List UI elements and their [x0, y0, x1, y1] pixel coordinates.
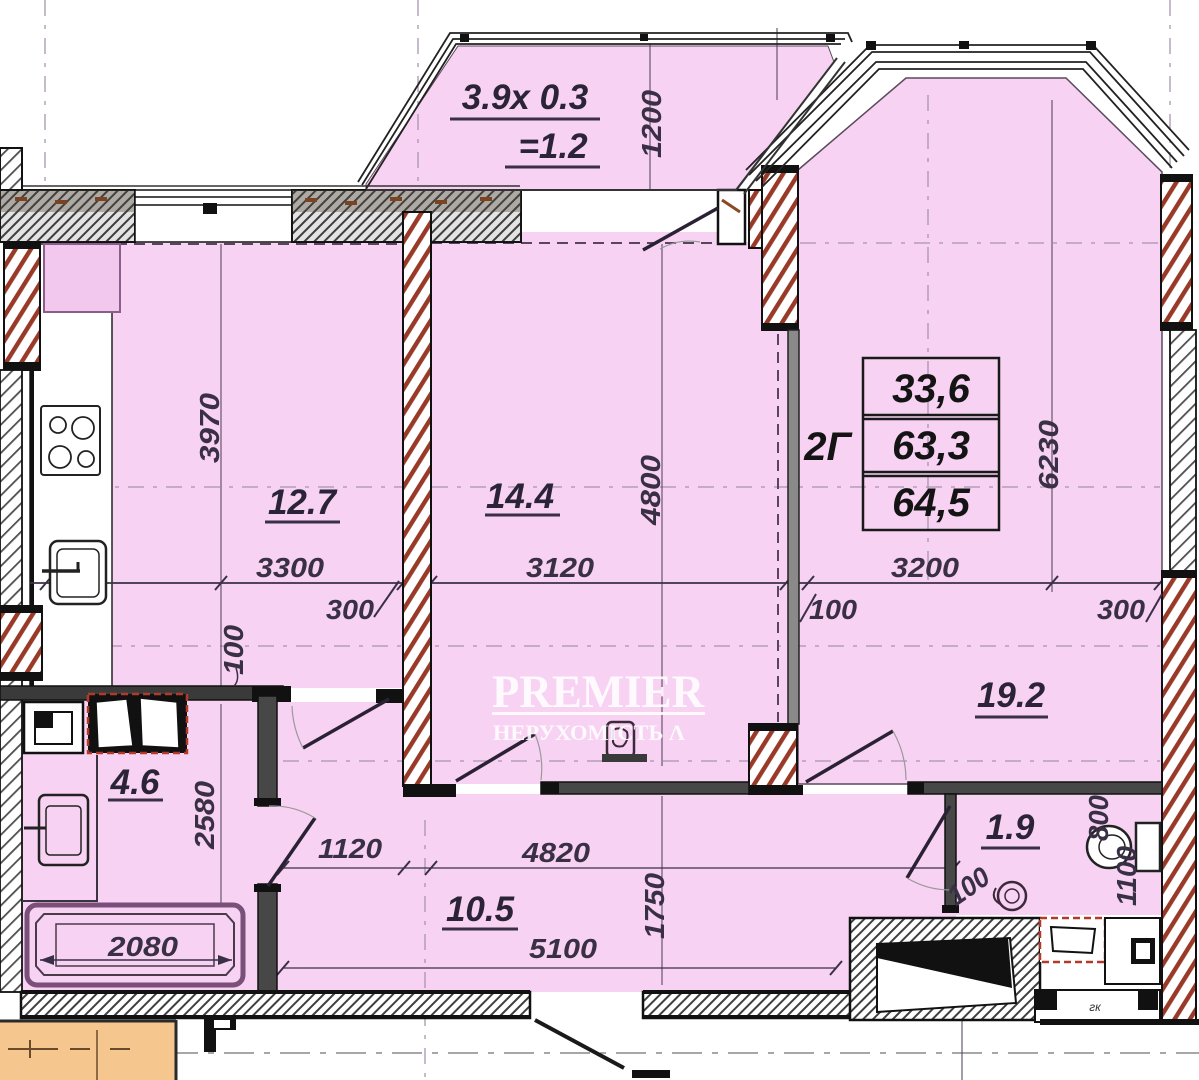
svg-text:4.6: 4.6	[110, 763, 160, 802]
svg-text:300: 300	[326, 594, 374, 625]
svg-text:PREMIER: PREMIER	[492, 666, 705, 718]
svg-text:1120: 1120	[318, 833, 382, 864]
svg-text:100: 100	[218, 625, 249, 675]
svg-text:6230: 6230	[1033, 420, 1064, 490]
svg-text:2Г: 2Г	[803, 425, 853, 469]
svg-text:3.9x 0.3: 3.9x 0.3	[462, 78, 589, 117]
svg-text:12.7: 12.7	[268, 483, 338, 522]
svg-text:64,5: 64,5	[892, 481, 971, 525]
svg-text:2580: 2580	[189, 781, 220, 851]
svg-text:3120: 3120	[526, 552, 594, 583]
svg-text:2080: 2080	[107, 931, 179, 962]
svg-text:800: 800	[1083, 795, 1114, 841]
svg-text:3200: 3200	[891, 552, 959, 583]
svg-text:1.9: 1.9	[986, 808, 1035, 847]
svg-text:3970: 3970	[194, 393, 225, 463]
svg-text:4820: 4820	[521, 837, 591, 868]
svg-text:19.2: 19.2	[977, 676, 1046, 715]
svg-text:НЕРУХОМІСТЬ Λ: НЕРУХОМІСТЬ Λ	[493, 720, 685, 745]
svg-text:10.5: 10.5	[446, 890, 515, 929]
svg-text:=1.2: =1.2	[518, 127, 588, 166]
svg-text:4800: 4800	[635, 455, 666, 527]
svg-text:100: 100	[809, 594, 857, 625]
svg-text:1100: 1100	[1111, 846, 1142, 906]
svg-text:5100: 5100	[529, 933, 597, 964]
svg-text:1750: 1750	[639, 873, 670, 939]
svg-text:гк: гк	[1089, 1000, 1102, 1014]
svg-text:300: 300	[1097, 594, 1145, 625]
svg-text:14.4: 14.4	[486, 477, 554, 516]
svg-text:63,3: 63,3	[892, 424, 970, 468]
svg-text:3300: 3300	[256, 552, 324, 583]
svg-text:1200: 1200	[636, 90, 667, 158]
svg-text:33,6: 33,6	[892, 367, 971, 411]
